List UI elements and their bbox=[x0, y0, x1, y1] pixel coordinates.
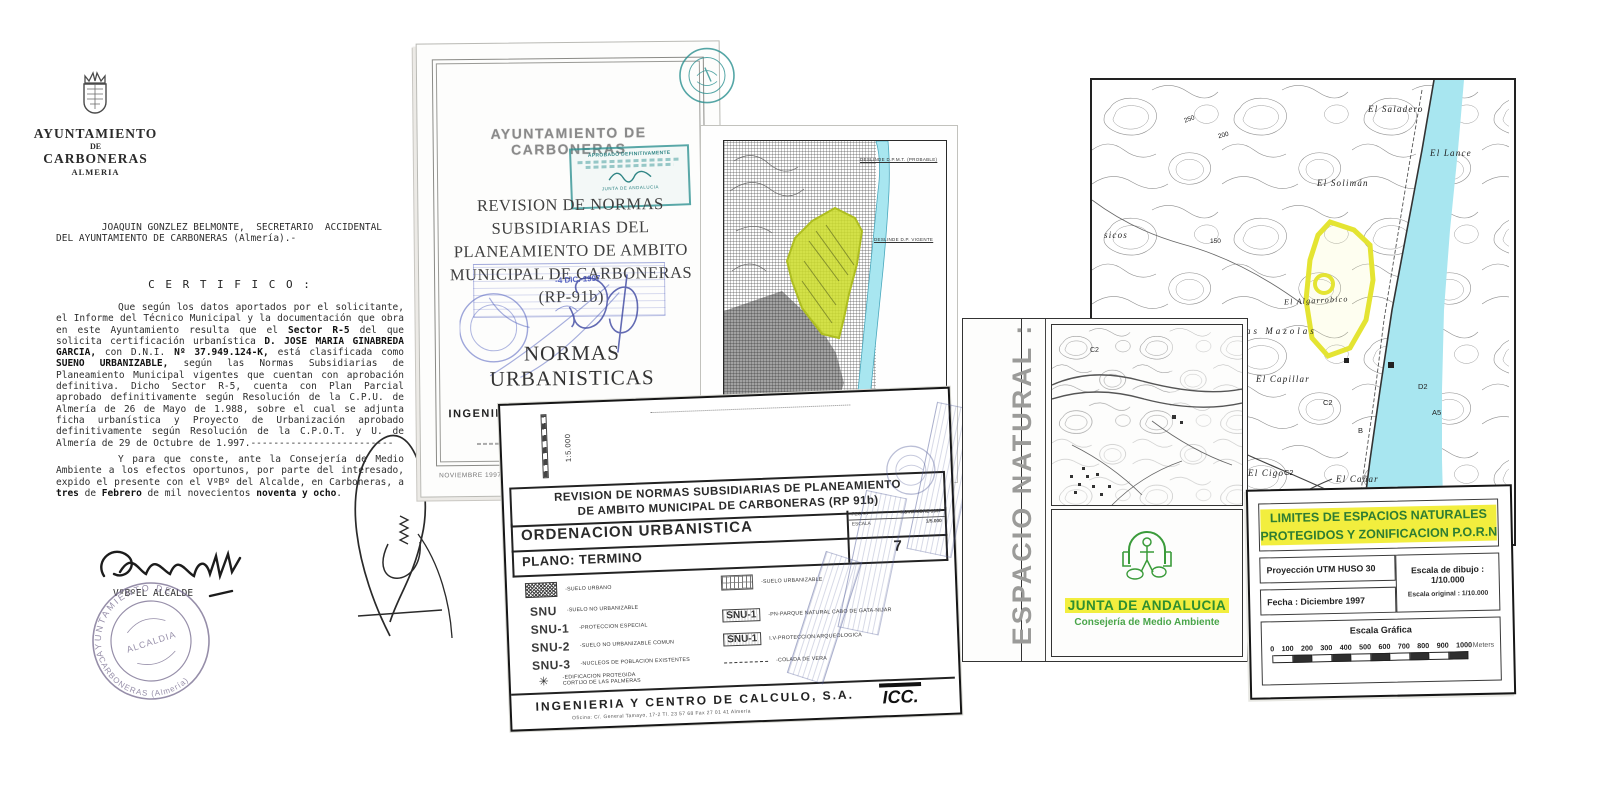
place-label: El Capillar bbox=[1256, 374, 1310, 384]
vertical-scale-label: 1:5.000 bbox=[563, 433, 573, 462]
org-name-line1: AYUNTAMIENTO bbox=[28, 126, 163, 142]
legend-label: -SUELO NO URBANIZABLE bbox=[567, 605, 639, 614]
legend-row: SNU-1 -PROTECCION ESPECIAL bbox=[530, 618, 647, 636]
scale-segment bbox=[1449, 651, 1469, 659]
inset-map-drawing bbox=[1052, 325, 1242, 505]
certificate-page: AYUNTAMIENTO DE CARBONERAS ALMERIA JOAQU… bbox=[28, 56, 408, 696]
legend-label: -SUELO URBANO bbox=[565, 584, 612, 592]
escala-grafica-box: Escala Gráfica 0 100 200 300 400 500 600… bbox=[1261, 617, 1502, 686]
fecha-box: Fecha : Diciembre 1997 bbox=[1260, 587, 1397, 616]
legend-code: SNU bbox=[530, 604, 557, 619]
junta-title: JUNTA DE ANDALUCIA bbox=[1065, 598, 1230, 613]
limites-title: LIMITES DE ESPACIOS NATURALES PROTEGIDOS… bbox=[1260, 505, 1498, 546]
tick: 400 bbox=[1340, 643, 1352, 652]
escala-dibujo: Escala de dibujo : 1/10.000 bbox=[1396, 564, 1498, 586]
place-label: El Solimán bbox=[1317, 178, 1369, 188]
svg-text:ALCALDIA: ALCALDIA bbox=[125, 629, 177, 654]
asterisk-symbol: ✳ bbox=[538, 674, 549, 688]
tick: 800 bbox=[1417, 641, 1429, 650]
scale-segment bbox=[1371, 653, 1391, 661]
tick: 1000 bbox=[1456, 640, 1472, 649]
tick: 300 bbox=[1320, 643, 1332, 652]
org-name-line2: DE bbox=[28, 142, 163, 151]
zone-code: A5 bbox=[1432, 408, 1441, 417]
legend-code: SNU-2 bbox=[531, 639, 570, 654]
limites-title-box: LIMITES DE ESPACIOS NATURALES PROTEGIDOS… bbox=[1258, 499, 1499, 552]
escala-box: Escala de dibujo : 1/10.000 Escala origi… bbox=[1395, 553, 1500, 613]
org-name-line4: ALMERIA bbox=[28, 167, 163, 177]
legend-label: -SUELO URBANIZABLE bbox=[761, 576, 823, 584]
document-collage: AYUNTAMIENTO DE CARBONERAS ALMERIA JOAQU… bbox=[0, 0, 1600, 793]
letterhead: AYUNTAMIENTO DE CARBONERAS ALMERIA bbox=[28, 126, 163, 177]
scale-segment bbox=[1332, 654, 1352, 662]
legend-row: SNU-3 -NUCLEOS DE POBLACION EXISTENTES bbox=[532, 653, 690, 673]
org-name-line3: CARBONERAS bbox=[28, 151, 163, 167]
spacer-column bbox=[1021, 319, 1046, 661]
place-label: El Lance bbox=[1430, 148, 1472, 158]
junta-andalucia-logo-icon bbox=[1109, 524, 1185, 586]
zone-code: D2 bbox=[1418, 382, 1428, 391]
scale-segment bbox=[1390, 652, 1410, 660]
municipal-crest-icon bbox=[73, 64, 117, 126]
stamp-signature-icon bbox=[605, 168, 655, 184]
certifico-heading: C E R T I F I C O : bbox=[56, 278, 404, 291]
scale-bar bbox=[1272, 651, 1468, 663]
legend-code: SNU-1 bbox=[530, 621, 569, 636]
legend-row: SNU-2 -SUELO NO URBANIZABLE COMUN bbox=[531, 635, 674, 654]
escala-original: Escala original : 1/10.000 bbox=[1397, 590, 1499, 599]
junta-logo-box: JUNTA DE ANDALUCIA Consejería de Medio A… bbox=[1051, 509, 1243, 657]
legend-row: -SUELO URBANIZABLE bbox=[721, 572, 823, 591]
vertical-title-column: ESPACIO NATURAL : bbox=[963, 319, 1022, 661]
zone-code: C2 bbox=[1323, 398, 1333, 407]
limites-title-block: LIMITES DE ESPACIOS NATURALES PROTEGIDOS… bbox=[1246, 484, 1516, 700]
legend-label: -PROTECCION ESPECIAL bbox=[579, 622, 648, 631]
legend-label: -EDIFICACION PROTEGIDA CORTIJO DE LAS PA… bbox=[563, 672, 641, 687]
tick: 900 bbox=[1437, 641, 1449, 650]
scale-segment bbox=[1273, 655, 1293, 663]
teal-round-stamp bbox=[675, 43, 740, 108]
deslinde-annotation: DESLINDE D.P. VIGENTE bbox=[874, 237, 933, 242]
vertical-scale-bar bbox=[540, 414, 548, 478]
round-stamp-icon bbox=[882, 441, 940, 499]
legend-row: ✳ -EDIFICACION PROTEGIDA CORTIJO DE LAS … bbox=[538, 671, 641, 689]
suelo-urbanizable-swatch bbox=[721, 574, 754, 590]
tick: 500 bbox=[1359, 642, 1371, 651]
consejeria-subtitle: Consejería de Medio Ambiente bbox=[1052, 617, 1242, 628]
deslinde-annotation: DESLINDE D.P.M.T. (PROBABLE) bbox=[860, 157, 937, 162]
boxed-code: SNU-1 bbox=[723, 632, 761, 646]
icc-logo: ICC. bbox=[879, 682, 922, 709]
place-label: El Cañar bbox=[1336, 474, 1379, 484]
cover-subtitle: NORMAS URBANISTICAS bbox=[446, 340, 699, 393]
legend-row: -SUELO URBANO bbox=[525, 580, 612, 598]
tick: 600 bbox=[1378, 642, 1390, 651]
tick: 200 bbox=[1301, 643, 1313, 652]
boxed-code: SNU-1 bbox=[722, 608, 760, 622]
colada-swatch bbox=[724, 660, 768, 663]
scale-segment bbox=[1293, 654, 1313, 662]
legend-row: SNU -SUELO NO URBANIZABLE bbox=[530, 601, 639, 619]
scale-segment bbox=[1410, 652, 1430, 660]
legend-row: SNU-1 I.V-PROTECCION ARQUEOLOGICA bbox=[723, 628, 862, 646]
zone-code: B bbox=[1358, 426, 1363, 435]
legend-label: -NUCLEOS DE POBLACION EXISTENTES bbox=[580, 657, 690, 667]
dotted-rule bbox=[650, 404, 850, 413]
inset-zone-code: C2 bbox=[1090, 347, 1099, 354]
tick: 100 bbox=[1281, 644, 1293, 653]
place-label: El Cigo bbox=[1248, 468, 1284, 478]
scale-unit: Meters bbox=[1473, 642, 1495, 649]
elevation-label: 150 bbox=[1210, 238, 1221, 245]
tick: 0 bbox=[1270, 644, 1274, 653]
legend-label: -SUELO NO URBANIZABLE COMUN bbox=[580, 639, 674, 649]
cover-footer-date: NOVIEMBRE 1997 bbox=[439, 472, 501, 480]
espacio-natural-panel: ESPACIO NATURAL : C2 bbox=[962, 318, 1248, 662]
zone-code: C2 bbox=[1284, 468, 1294, 477]
suelo-urbano-swatch bbox=[525, 582, 558, 598]
place-label: Las Mazolas bbox=[1238, 326, 1317, 336]
scale-segment bbox=[1429, 652, 1449, 660]
inset-topo-map: C2 bbox=[1051, 324, 1243, 506]
secretary-intro: JOAQUIN GONZLEZ BELMONTE, SECRETARIO ACC… bbox=[56, 222, 404, 245]
scale-segment bbox=[1351, 653, 1371, 661]
scale-segment bbox=[1312, 654, 1332, 662]
place-label: sicos bbox=[1104, 230, 1128, 240]
legend-code: SNU-3 bbox=[532, 657, 571, 672]
place-label: El Saladero bbox=[1368, 104, 1424, 114]
plan-sheet: 1:5.000 REVISION DE NORMAS SUBSIDIARIAS … bbox=[498, 387, 962, 732]
escala-grafica-label: Escala Gráfica bbox=[1262, 623, 1500, 638]
proyeccion-box: Proyección UTM HUSO 30 bbox=[1259, 555, 1396, 584]
tick: 700 bbox=[1398, 641, 1410, 650]
stamp-line bbox=[586, 163, 674, 169]
